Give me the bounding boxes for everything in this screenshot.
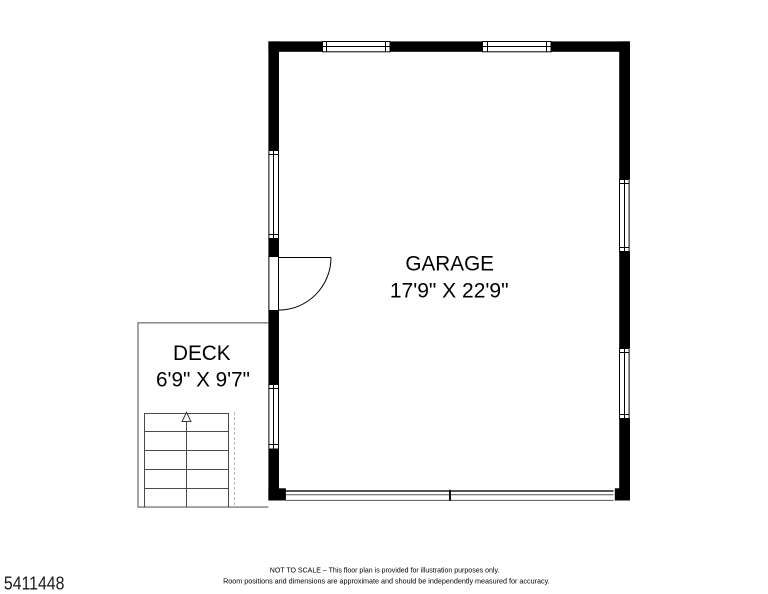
svg-text:17'9" X 22'9": 17'9" X 22'9" (390, 280, 509, 303)
svg-text:5411448: 5411448 (4, 573, 65, 593)
svg-text:GARAGE: GARAGE (405, 253, 494, 276)
svg-text:Room positions and dimensions: Room positions and dimensions are approx… (223, 576, 550, 585)
svg-text:6'9" X 9'7": 6'9" X 9'7" (156, 368, 250, 391)
svg-text:NOT TO SCALE – This floor plan: NOT TO SCALE – This floor plan is provid… (270, 566, 500, 575)
svg-text:DECK: DECK (173, 342, 231, 365)
